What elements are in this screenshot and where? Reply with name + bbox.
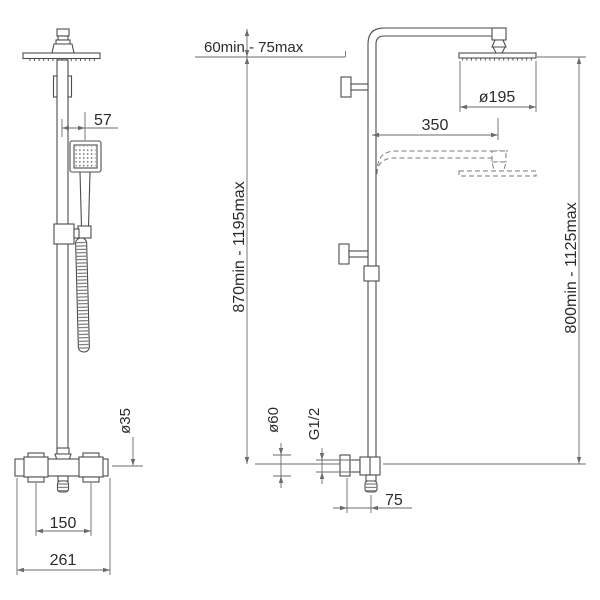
- technical-drawing: 57 ø35 150 261: [0, 0, 600, 600]
- dimension-height-right: 800min - 1125max: [563, 57, 581, 464]
- nozzle-ticks-side: [462, 58, 534, 60]
- mixer-valve-side: [340, 455, 380, 492]
- dimension-top-adjustment: 60min - 75max: [204, 29, 304, 57]
- dimension-escutcheon-diameter: ø60: [265, 407, 291, 488]
- pipe-collar: [364, 266, 379, 281]
- overhead-shower-side: [459, 28, 536, 61]
- dim-label-arm-projection: 350: [422, 117, 449, 134]
- dim-label-inlet-offset: 75: [385, 492, 403, 509]
- dim-label-handle-spacing: 150: [50, 515, 77, 532]
- pole-bracket-front: [54, 224, 79, 244]
- mixer-valve-front: [15, 453, 108, 492]
- dimension-height-left: 870min - 1195max: [231, 57, 249, 464]
- wall-bracket-lower: [339, 244, 368, 264]
- extension-lines: [195, 51, 586, 464]
- dim-label-height-left: 870min - 1195max: [231, 181, 248, 312]
- dim-label-height-right: 800min - 1125max: [563, 202, 580, 333]
- side-view: 60min - 75max 870min - 1195max 800min - …: [195, 28, 586, 513]
- overhead-shower-front: [23, 29, 100, 61]
- shower-hose: [76, 238, 90, 352]
- dimension-arm-projection: 350: [372, 117, 498, 140]
- dim-label-escutcheon-diameter: ø60: [265, 407, 282, 433]
- dim-label-top-adjustment: 60min - 75max: [204, 39, 304, 56]
- dim-label-valve-width: 261: [50, 552, 77, 569]
- shower-pole-front: [54, 60, 72, 460]
- drawing-canvas: 57 ø35 150 261: [0, 0, 600, 600]
- spray-face: [76, 147, 96, 167]
- dimension-head-diameter: ø195: [460, 61, 536, 112]
- dim-label-handset-offset: 57: [94, 112, 112, 129]
- dim-label-head-diameter: ø195: [479, 89, 516, 106]
- dimension-handset-offset: 57: [62, 112, 118, 140]
- hand-shower: [70, 141, 101, 238]
- dim-label-pole-diameter: ø35: [117, 408, 134, 434]
- wall-bracket-upper: [341, 77, 368, 97]
- dim-label-inlet-thread: G1/2: [306, 408, 323, 441]
- dimension-pole-diameter: ø35: [112, 408, 143, 466]
- shower-arm-alt-position: [377, 151, 536, 176]
- front-view: 57 ø35 150 261: [15, 29, 143, 575]
